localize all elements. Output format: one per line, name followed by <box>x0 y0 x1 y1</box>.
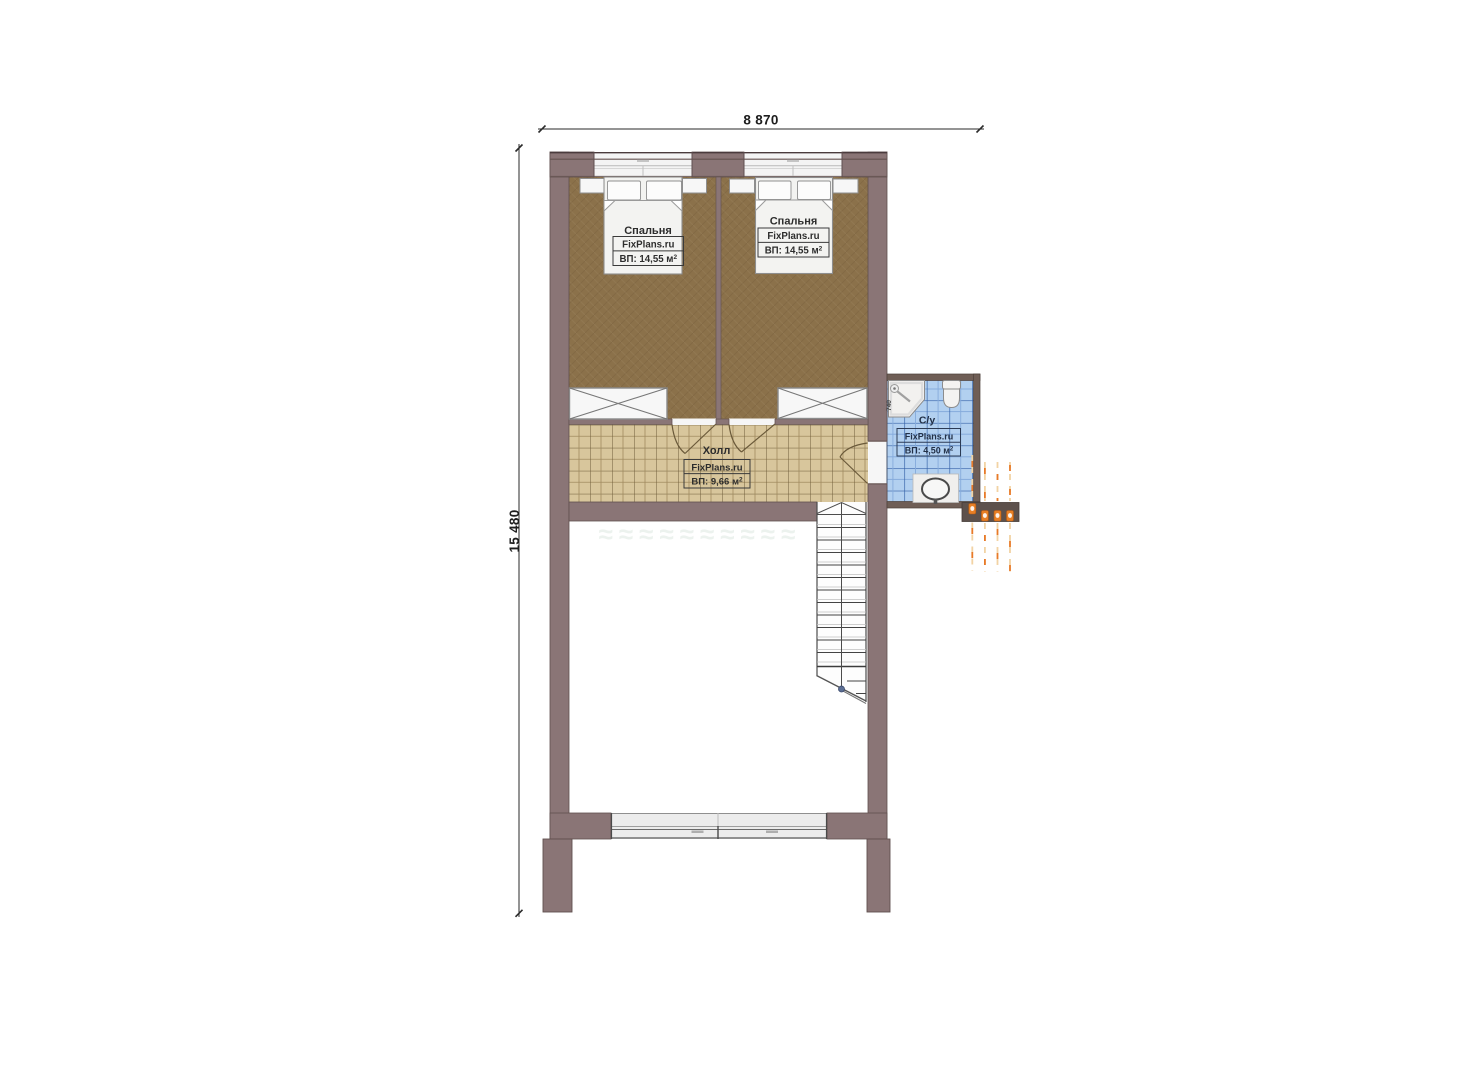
svg-text:FixPlans.ru: FixPlans.ru <box>622 240 674 251</box>
svg-text:ВП: 14,55 м2: ВП: 14,55 м2 <box>765 245 823 256</box>
svg-text:8 870: 8 870 <box>743 113 778 128</box>
svg-text:FixPlans.ru: FixPlans.ru <box>905 431 954 441</box>
svg-text:ВП: 9,66 м2: ВП: 9,66 м2 <box>691 476 743 487</box>
svg-text:ВП: 14,55 м2: ВП: 14,55 м2 <box>619 254 677 265</box>
svg-text:740: 740 <box>886 400 893 411</box>
svg-text:ВП: 4,50 м2: ВП: 4,50 м2 <box>905 445 954 455</box>
svg-text:С/у: С/у <box>919 415 936 427</box>
svg-text:≈≈≈≈≈≈≈≈≈≈: ≈≈≈≈≈≈≈≈≈≈ <box>599 519 802 549</box>
svg-text:Холл: Холл <box>703 445 731 457</box>
svg-text:FixPlans.ru: FixPlans.ru <box>767 231 819 242</box>
svg-text:15 480: 15 480 <box>507 509 522 552</box>
svg-text:FixPlans.ru: FixPlans.ru <box>691 462 742 473</box>
svg-text:Спальня: Спальня <box>770 216 818 228</box>
svg-text:Спальня: Спальня <box>624 225 672 237</box>
